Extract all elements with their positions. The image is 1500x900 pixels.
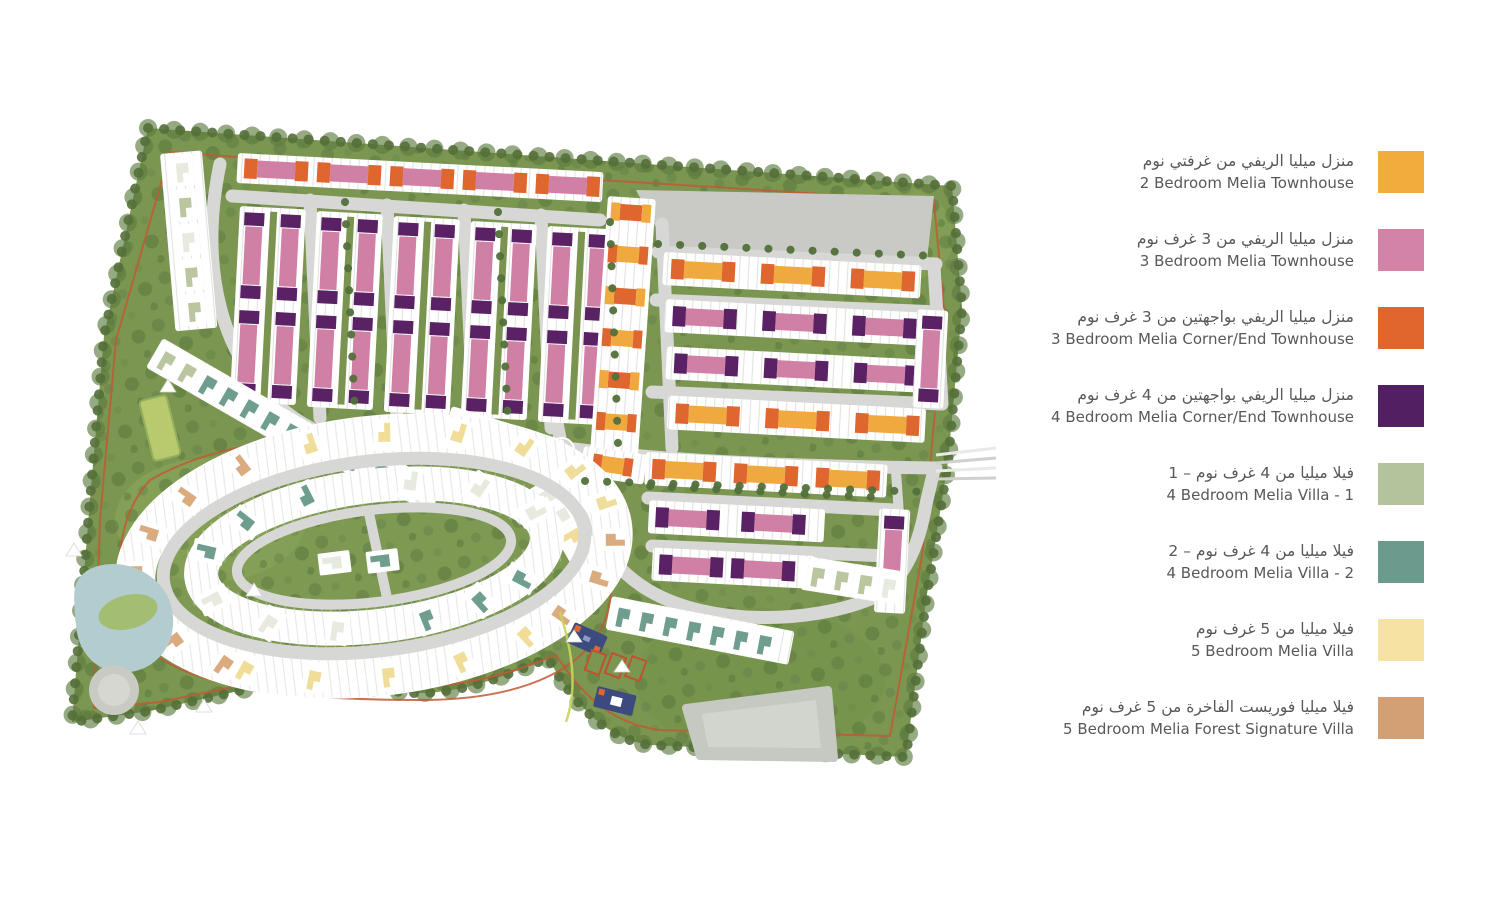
legend-label-en: 5 Bedroom Melia Forest Signature Villa: [1048, 720, 1354, 740]
legend-item-2br-townhouse: منزل ميليا الريفي من غرفتي نوم 2 Bedroom…: [1048, 133, 1424, 211]
site-plan-map: [0, 0, 1010, 900]
legend-swatch: [1378, 307, 1424, 349]
legend: منزل ميليا الريفي من غرفتي نوم 2 Bedroom…: [1048, 133, 1424, 757]
legend-label-ar: فيلا ميليا من 4 غرف نوم – 1: [1048, 463, 1354, 484]
legend-label-ar: فيلا ميليا من 4 غرف نوم – 2: [1048, 541, 1354, 562]
legend-item-5br-villa: فيلا ميليا من 5 غرف نوم 5 Bedroom Melia …: [1048, 601, 1424, 679]
legend-label-ar: منزل ميليا الريفي من 3 غرف نوم: [1048, 229, 1354, 250]
legend-item-5br-forest-signature-villa: فيلا ميليا فوريست الفاخرة من 5 غرف نوم 5…: [1048, 679, 1424, 757]
legend-item-3br-townhouse: منزل ميليا الريفي من 3 غرف نوم 3 Bedroom…: [1048, 211, 1424, 289]
legend-item-4br-villa-2: فيلا ميليا من 4 غرف نوم – 2 4 Bedroom Me…: [1048, 523, 1424, 601]
legend-swatch: [1378, 541, 1424, 583]
legend-label-ar: منزل ميليا الريفي بواجهتين من 3 غرف نوم: [1048, 307, 1354, 328]
legend-label-en: 4 Bedroom Melia Corner/End Townhouse: [1048, 408, 1354, 428]
legend-label-ar: منزل ميليا الريفي من غرفتي نوم: [1048, 151, 1354, 172]
legend-swatch: [1378, 385, 1424, 427]
legend-label-ar: فيلا ميليا من 5 غرف نوم: [1048, 619, 1354, 640]
legend-label-en: 4 Bedroom Melia Villa - 1: [1048, 486, 1354, 506]
legend-swatch: [1378, 697, 1424, 739]
legend-item-4br-corner-townhouse: منزل ميليا الريفي بواجهتين من 4 غرف نوم …: [1048, 367, 1424, 445]
legend-label-en: 2 Bedroom Melia Townhouse: [1048, 174, 1354, 194]
legend-label-en: 5 Bedroom Melia Villa: [1048, 642, 1354, 662]
legend-label-ar: منزل ميليا الريفي بواجهتين من 4 غرف نوم: [1048, 385, 1354, 406]
legend-label-en: 4 Bedroom Melia Villa - 2: [1048, 564, 1354, 584]
legend-swatch: [1378, 619, 1424, 661]
legend-item-3br-corner-townhouse: منزل ميليا الريفي بواجهتين من 3 غرف نوم …: [1048, 289, 1424, 367]
legend-label-en: 3 Bedroom Melia Townhouse: [1048, 252, 1354, 272]
legend-label-en: 3 Bedroom Melia Corner/End Townhouse: [1048, 330, 1354, 350]
legend-swatch: [1378, 151, 1424, 193]
legend-swatch: [1378, 229, 1424, 271]
legend-swatch: [1378, 463, 1424, 505]
masterplan-page: منزل ميليا الريفي من غرفتي نوم 2 Bedroom…: [0, 0, 1500, 900]
legend-item-4br-villa-1: فيلا ميليا من 4 غرف نوم – 1 4 Bedroom Me…: [1048, 445, 1424, 523]
legend-label-ar: فيلا ميليا فوريست الفاخرة من 5 غرف نوم: [1048, 697, 1354, 718]
